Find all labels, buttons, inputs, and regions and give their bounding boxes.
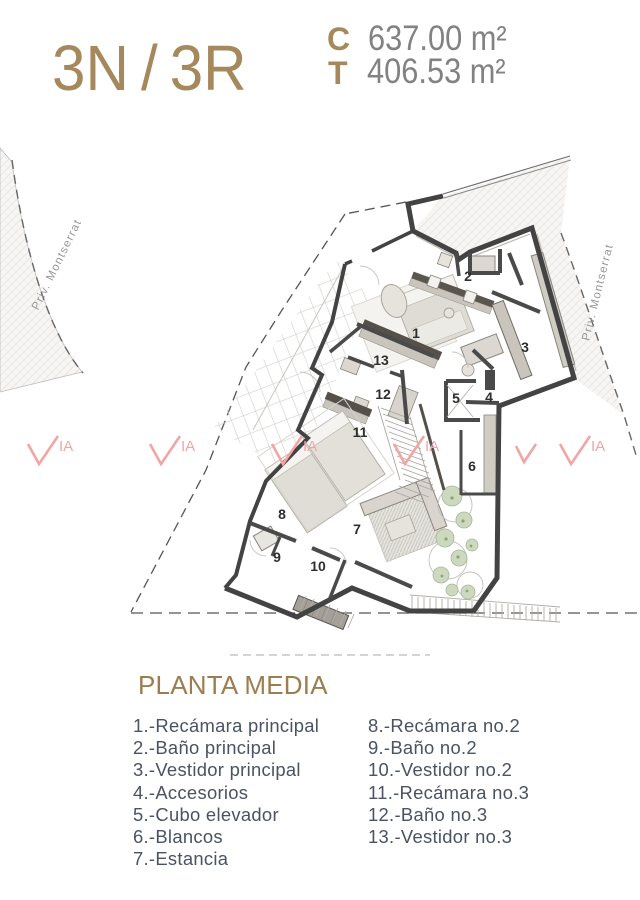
svg-text:IA: IA: [303, 438, 317, 455]
svg-text:IA: IA: [59, 438, 73, 455]
svg-text:4: 4: [485, 389, 493, 405]
svg-text:7: 7: [353, 521, 361, 537]
svg-text:8: 8: [278, 506, 286, 522]
svg-text:10: 10: [310, 558, 326, 574]
svg-text:9: 9: [273, 549, 281, 565]
svg-text:IA: IA: [181, 438, 195, 455]
svg-text:IA: IA: [425, 438, 439, 455]
svg-text:5: 5: [452, 390, 460, 406]
svg-text:13: 13: [373, 352, 389, 368]
svg-text:IA: IA: [591, 438, 605, 455]
svg-text:1: 1: [412, 325, 420, 341]
svg-text:Priv. Montserrat: Priv. Montserrat: [30, 217, 84, 312]
svg-text:12: 12: [375, 386, 391, 402]
svg-text:3: 3: [521, 339, 529, 355]
svg-text:Priv. Montserrat: Priv. Montserrat: [580, 243, 616, 342]
svg-text:11: 11: [353, 424, 368, 440]
svg-text:6: 6: [468, 458, 476, 474]
svg-text:2: 2: [464, 268, 472, 284]
